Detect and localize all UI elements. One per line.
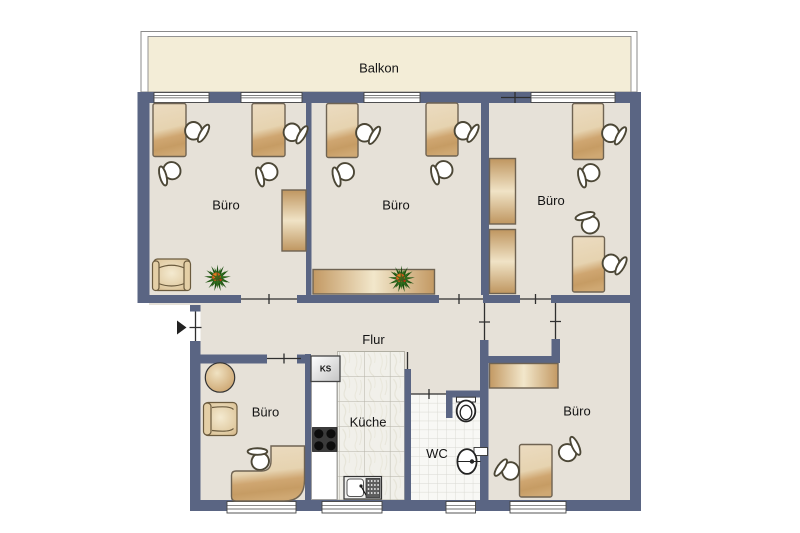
svg-text:Balkon: Balkon bbox=[359, 61, 399, 76]
svg-text:WC: WC bbox=[426, 446, 448, 461]
svg-text:Büro: Büro bbox=[563, 404, 590, 419]
svg-text:Büro: Büro bbox=[537, 193, 564, 208]
svg-text:KS: KS bbox=[320, 365, 332, 374]
svg-text:Büro: Büro bbox=[212, 198, 239, 213]
svg-text:Büro: Büro bbox=[382, 198, 409, 213]
svg-text:Küche: Küche bbox=[350, 415, 387, 430]
svg-text:Büro: Büro bbox=[252, 405, 279, 420]
svg-text:Flur: Flur bbox=[362, 332, 385, 347]
